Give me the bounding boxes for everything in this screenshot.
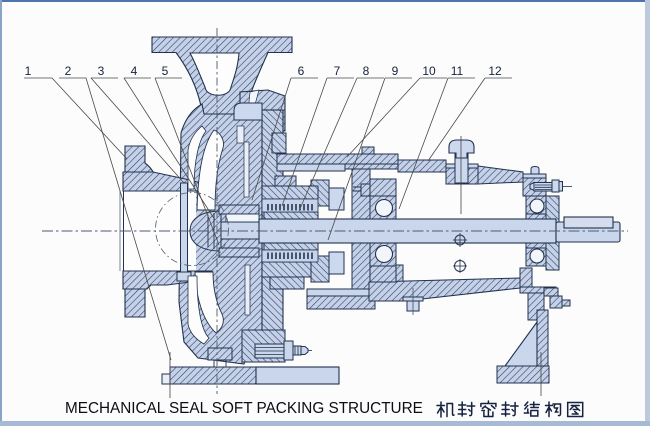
svg-text:12: 12 — [488, 64, 502, 78]
svg-text:8: 8 — [363, 64, 370, 78]
svg-text:11: 11 — [451, 64, 464, 78]
svg-text:7: 7 — [334, 64, 341, 78]
svg-text:4: 4 — [131, 64, 138, 78]
svg-text:10: 10 — [422, 64, 436, 78]
svg-text:5: 5 — [162, 64, 169, 78]
svg-text:MECHANICAL SEAL SOFT PACKING S: MECHANICAL SEAL SOFT PACKING STRUCTURE — [65, 400, 423, 417]
svg-text:9: 9 — [392, 64, 399, 78]
svg-text:2: 2 — [65, 64, 72, 78]
svg-text:3: 3 — [98, 64, 105, 78]
svg-text:1: 1 — [25, 64, 32, 78]
svg-text:6: 6 — [298, 64, 305, 78]
